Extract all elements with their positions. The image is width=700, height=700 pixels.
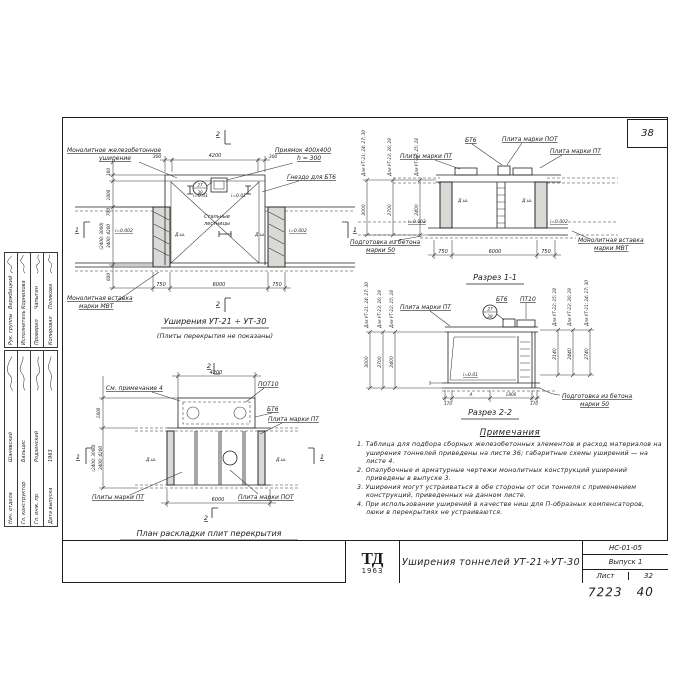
stamp-row: Гл. конструктор Бальцис — [18, 351, 31, 526]
svg-text:Для УТ-22; 25; 28: Для УТ-22; 25; 28 — [552, 288, 557, 327]
pit-label: Приямок 400x400 — [275, 147, 331, 154]
svg-text:1800: 1800 — [506, 392, 517, 397]
signature-mark — [32, 253, 42, 275]
svg-text:Разрез 2-2: Разрез 2-2 — [468, 408, 512, 417]
svg-text:2: 2 — [207, 362, 211, 370]
svg-text:i=0.01: i=0.01 — [231, 193, 246, 199]
issue-number: Выпуск 1 — [583, 555, 668, 569]
sheet-label: Лист — [583, 572, 629, 580]
logo-year: 1963 — [362, 567, 384, 575]
sheet-number-row: Лист 32 — [583, 570, 668, 583]
svg-text:Для УТ-21; 24; 27; 30: Для УТ-21; 24; 27; 30 — [361, 130, 366, 177]
stamp-table-executors: Рук. группы Вержбицкий Исполнитель Корни… — [4, 252, 58, 348]
svg-text:ПТ10: ПТ10 — [520, 296, 536, 303]
svg-text:2740: 2740 — [584, 348, 590, 360]
svg-text:1: 1 — [76, 453, 80, 461]
section1-dims-bottom: 750 6000 750 — [428, 240, 561, 259]
svg-text:750: 750 — [156, 282, 166, 288]
note-item: 3. Уширения могут устраиваться в обе сто… — [357, 484, 663, 501]
svg-text:700: 700 — [106, 208, 111, 216]
stamp-table-approvals: Нач. отдела Шанявский Гл. конструктор Ба… — [4, 350, 58, 527]
plan-widening-drawing: 27 39 300 4200 300 750 6000 750 180 1800… — [65, 122, 365, 340]
stamp-row: Гл. инж. пр. Родзинский — [31, 351, 44, 526]
svg-text:2700: 2700 — [387, 204, 393, 216]
svg-text:БТ6: БТ6 — [496, 296, 508, 303]
widening-outline — [165, 175, 265, 265]
svg-text:27: 27 — [197, 183, 203, 188]
svg-text:марки 50: марки 50 — [366, 247, 395, 254]
svg-text:Д.ш.: Д.ш. — [254, 232, 266, 238]
svg-text:300: 300 — [153, 154, 162, 160]
svg-text:600: 600 — [106, 273, 111, 281]
svg-text:6000: 6000 — [213, 282, 226, 288]
signature-mark — [46, 351, 56, 396]
svg-text:Д.ш.: Д.ш. — [521, 198, 533, 204]
stamp-row: Проверил Чапыгин — [31, 253, 44, 347]
svg-text:Уширения УТ-21 ÷ УТ-30: Уширения УТ-21 ÷ УТ-30 — [164, 317, 267, 326]
svg-text:6000: 6000 — [212, 497, 225, 503]
svg-text:27: 27 — [487, 307, 493, 312]
svg-text:4200: 4200 — [209, 153, 222, 159]
svg-text:4200: 4200 — [210, 370, 223, 376]
section-1-1-drawing: 3000 2700 2400 Для УТ-21; 24; 27; 30 Для… — [350, 122, 668, 307]
svg-text:Плита марки ПТ: Плита марки ПТ — [268, 416, 320, 423]
svg-text:марки МВТ: марки МВТ — [79, 303, 115, 310]
section2-detail-mark: 27 39 — [483, 305, 504, 320]
plan-title: Уширения УТ-21 ÷ УТ-30 (Плиты перекрытия… — [157, 317, 273, 340]
plan-slab-layout-drawing: 4200 6000 1800 (2400; 3000) 3400; 4200 2… — [62, 360, 362, 545]
svg-text:(2400; 3000): (2400; 3000) — [99, 222, 104, 250]
organization-logo: ТД 1963 — [346, 541, 400, 583]
titleblock-right: НС-01-05 Выпуск 1 Лист 32 — [582, 541, 668, 583]
svg-text:750: 750 — [272, 282, 282, 288]
stamp-row: Копировал Полякова — [44, 253, 57, 347]
svg-text:750: 750 — [541, 249, 551, 255]
signature-mark — [6, 253, 16, 275]
svg-text:i=0.002: i=0.002 — [289, 228, 307, 234]
signature-mark — [19, 253, 29, 275]
section2-dims-bottom: 170 А 1800 170 — [442, 390, 540, 406]
svg-text:h = 300: h = 300 — [297, 155, 321, 162]
svg-text:лестницы: лестницы — [203, 221, 230, 227]
section2-dims-left: 3000 2700 2400 Для УТ-21; 24; 27; 30 Для… — [364, 282, 445, 390]
svg-text:ПОТ10: ПОТ10 — [258, 381, 279, 388]
section2-dims-right: 2140 2440 2740 Для УТ-22; 25; 28 Для УТ-… — [540, 280, 594, 377]
svg-text:1: 1 — [320, 453, 324, 461]
svg-text:Плита марки ПОТ: Плита марки ПОТ — [502, 136, 559, 143]
note-item: 4. При использовании уширений в качестве… — [357, 501, 663, 518]
signature-mark — [19, 351, 29, 396]
svg-text:170: 170 — [530, 401, 538, 406]
svg-text:i=0.002: i=0.002 — [550, 219, 568, 225]
handwritten-inventory-note: 722340 — [588, 585, 668, 600]
svg-text:170: 170 — [444, 401, 452, 406]
svg-text:Д.ш.: Д.ш. — [275, 457, 287, 463]
svg-text:2: 2 — [216, 130, 220, 138]
svg-text:Подготовка из бетона: Подготовка из бетона — [562, 393, 633, 400]
svg-text:Плита марки ПТ: Плита марки ПТ — [400, 304, 452, 311]
slab-plan-labels: См. примечание 4 ПОТ10 БТ6 Плита марки П… — [92, 381, 320, 501]
notes-title: Примечания — [357, 428, 663, 438]
notes-block: Примечания 1. Таблица для подбора сборны… — [357, 428, 663, 518]
svg-text:1800: 1800 — [106, 189, 111, 200]
svg-text:2: 2 — [216, 300, 220, 308]
svg-text:См. примечание 4: См. примечание 4 — [106, 385, 163, 392]
stamp-row: Нач. отдела Шанявский — [5, 351, 18, 526]
svg-text:БТ6: БТ6 — [465, 137, 477, 144]
svg-text:Плита марки ПТ: Плита марки ПТ — [550, 148, 602, 155]
section2-structure — [430, 319, 555, 391]
svg-text:39: 39 — [487, 314, 493, 319]
svg-text:2400: 2400 — [414, 204, 420, 216]
svg-text:Плиты марки ПТ: Плиты марки ПТ — [92, 494, 145, 501]
svg-text:i=0.002: i=0.002 — [115, 228, 133, 234]
logo-letters: ТД — [362, 550, 384, 567]
note-item: 1. Таблица для подбора сборных железобет… — [357, 441, 663, 467]
svg-text:3400; 4200: 3400; 4200 — [106, 224, 111, 248]
signature-mark — [32, 351, 42, 396]
svg-text:(Плиты перекрытия не показаны): (Плиты перекрытия не показаны) — [157, 332, 273, 340]
svg-text:1: 1 — [75, 226, 79, 234]
ladders-label: Стальные — [204, 214, 230, 220]
svg-text:300: 300 — [269, 154, 278, 160]
svg-text:i=0.01: i=0.01 — [463, 372, 478, 378]
note-item: 2. Опалубочные и арматурные чертежи моно… — [357, 467, 663, 484]
svg-text:марки МВТ: марки МВТ — [594, 245, 630, 252]
svg-text:3400; 4200: 3400; 4200 — [98, 446, 103, 470]
section1-title: Разрез 1-1 — [466, 273, 524, 284]
socket-label: Гнездо для БТ6 — [287, 174, 336, 181]
drawing-title: Уширения тоннелей УТ-21÷УТ-30 — [400, 541, 582, 583]
svg-text:А: А — [469, 392, 473, 397]
svg-text:уширение: уширение — [98, 155, 131, 162]
svg-text:Для УТ-21; 24; 27; 30: Для УТ-21; 24; 27; 30 — [364, 282, 369, 329]
svg-text:Д.ш.: Д.ш. — [145, 457, 157, 463]
svg-text:2140: 2140 — [552, 348, 558, 360]
svg-text:2: 2 — [204, 514, 208, 522]
stamp-row: Исполнитель Корнилова — [18, 253, 31, 347]
svg-text:Для УТ-23; 26; 29: Для УТ-23; 26; 29 — [387, 138, 392, 177]
svg-text:Для УТ-21; 24; 27; 30: Для УТ-21; 24; 27; 30 — [584, 280, 589, 327]
section-2-2-drawing: 27 39 3000 2700 2400 Для УТ-21; 24; 27; … — [350, 292, 668, 427]
slab-plan-title: План раскладки плит перекрытия — [120, 529, 298, 540]
svg-text:марки 50: марки 50 — [580, 401, 609, 408]
svg-text:Для УТ-23; 26; 29: Для УТ-23; 26; 29 — [567, 288, 572, 327]
svg-text:Д.ш.: Д.ш. — [174, 232, 186, 238]
signature-mark — [6, 351, 16, 396]
svg-text:БТ6: БТ6 — [267, 406, 279, 413]
widening-label: Монолитное железобетонное — [67, 147, 161, 154]
stamp-row: Рук. группы Вержбицкий — [5, 253, 18, 347]
detail-mark-circle: 27 39 — [193, 181, 212, 195]
svg-text:2400: 2400 — [389, 356, 395, 368]
svg-text:Д.ш.: Д.ш. — [457, 198, 469, 204]
signature-mark — [46, 253, 56, 275]
svg-text:Плиты марки ПТ: Плиты марки ПТ — [400, 153, 453, 160]
stamp-row: Дата выпуска 1963 — [44, 351, 57, 526]
section2-title: Разрез 2-2 — [461, 408, 519, 419]
svg-text:180: 180 — [106, 168, 111, 176]
section1-structure — [358, 166, 618, 238]
svg-text:Для УТ-22; 25; 28: Для УТ-22; 25; 28 — [389, 290, 394, 329]
svg-text:2440: 2440 — [567, 348, 573, 360]
dimensions-top: 300 4200 300 — [153, 153, 278, 172]
svg-text:План раскладки плит перекрытия: План раскладки плит перекрытия — [137, 529, 282, 538]
scanned-drawing-sheet: 38 27 39 — [0, 0, 700, 700]
dimensions-bottom: 750 6000 750 — [147, 272, 291, 292]
document-code: НС-01-05 — [583, 541, 668, 555]
svg-text:2700: 2700 — [377, 356, 383, 368]
svg-text:Разрез 1-1: Разрез 1-1 — [473, 273, 517, 282]
title-block: ТД 1963 Уширения тоннелей УТ-21÷УТ-30 НС… — [345, 541, 668, 583]
insert-label: Монолитная вставка — [67, 295, 133, 302]
svg-text:3000: 3000 — [361, 204, 367, 216]
svg-text:Подготовка из бетона: Подготовка из бетона — [350, 239, 421, 246]
svg-text:i=0.002: i=0.002 — [408, 219, 426, 225]
svg-text:6000: 6000 — [489, 249, 502, 255]
svg-text:1800: 1800 — [96, 407, 101, 418]
svg-text:i=0.01: i=0.01 — [193, 193, 208, 199]
sheet-number: 32 — [629, 572, 668, 580]
svg-text:3000: 3000 — [364, 356, 370, 368]
svg-text:750: 750 — [438, 249, 448, 255]
svg-text:Плита марки ПОТ: Плита марки ПОТ — [238, 494, 295, 501]
svg-text:Для УТ-23; 26; 29: Для УТ-23; 26; 29 — [377, 290, 382, 329]
notes-list: 1. Таблица для подбора сборных железобет… — [357, 441, 663, 518]
